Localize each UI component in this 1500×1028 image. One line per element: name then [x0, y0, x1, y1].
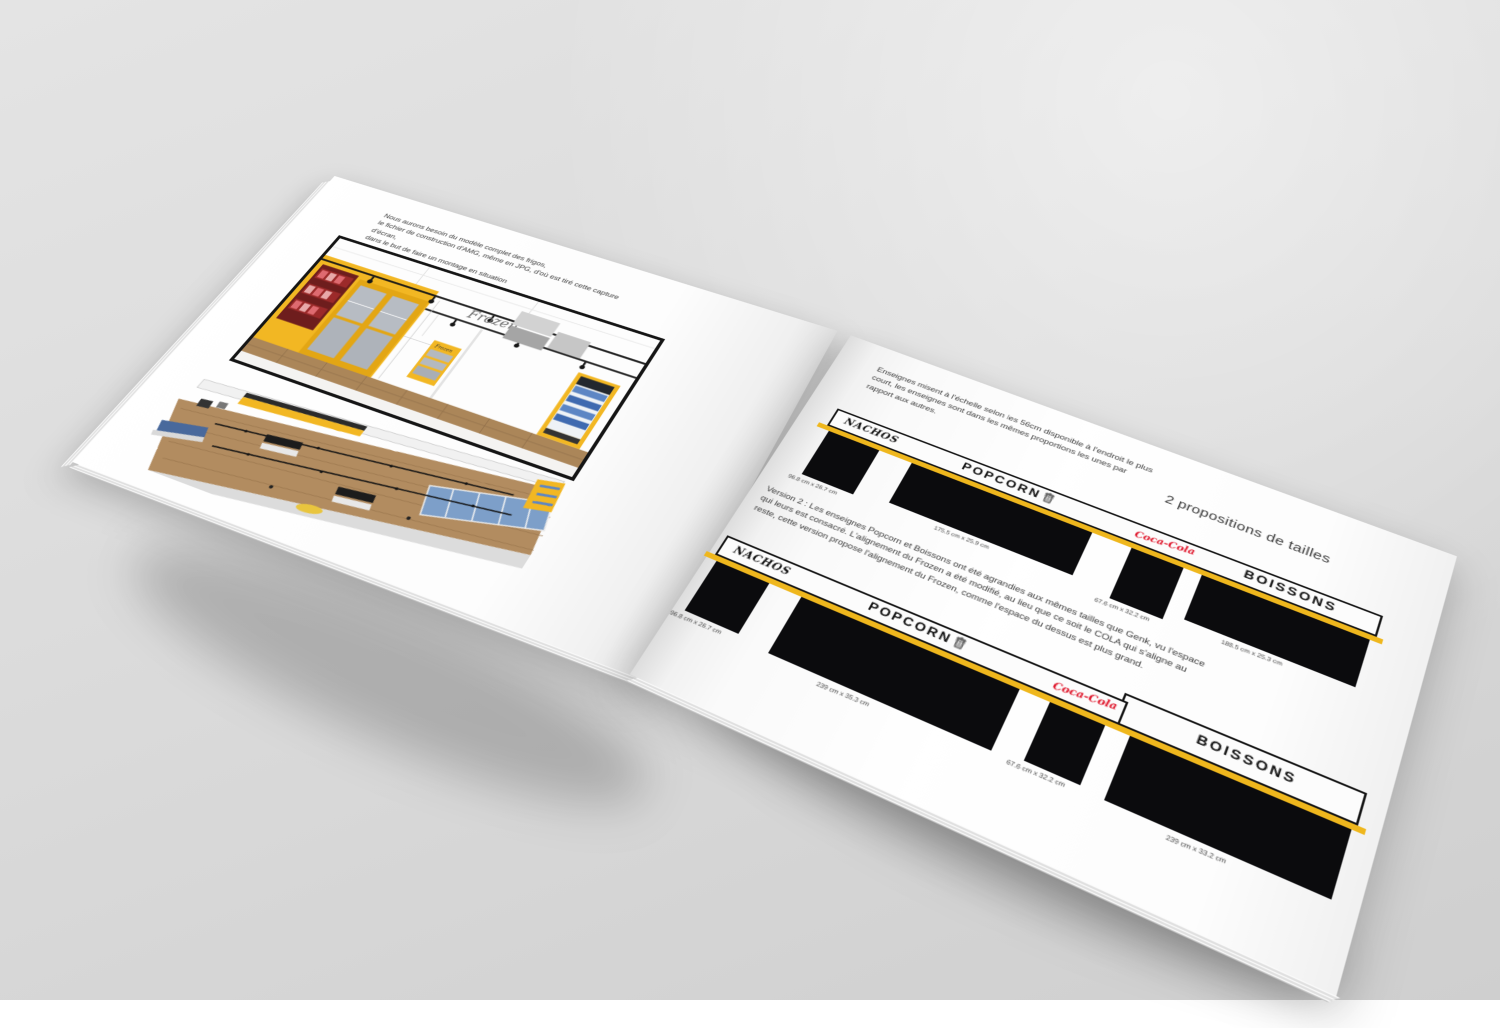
photo-backdrop: Nous aurons besoin du modèle complet des…	[0, 0, 1500, 1000]
boissons-sign-panel	[1104, 736, 1351, 900]
popcorn-sign-text: POPCORN	[866, 600, 955, 646]
yellow-stripe	[704, 551, 1366, 835]
